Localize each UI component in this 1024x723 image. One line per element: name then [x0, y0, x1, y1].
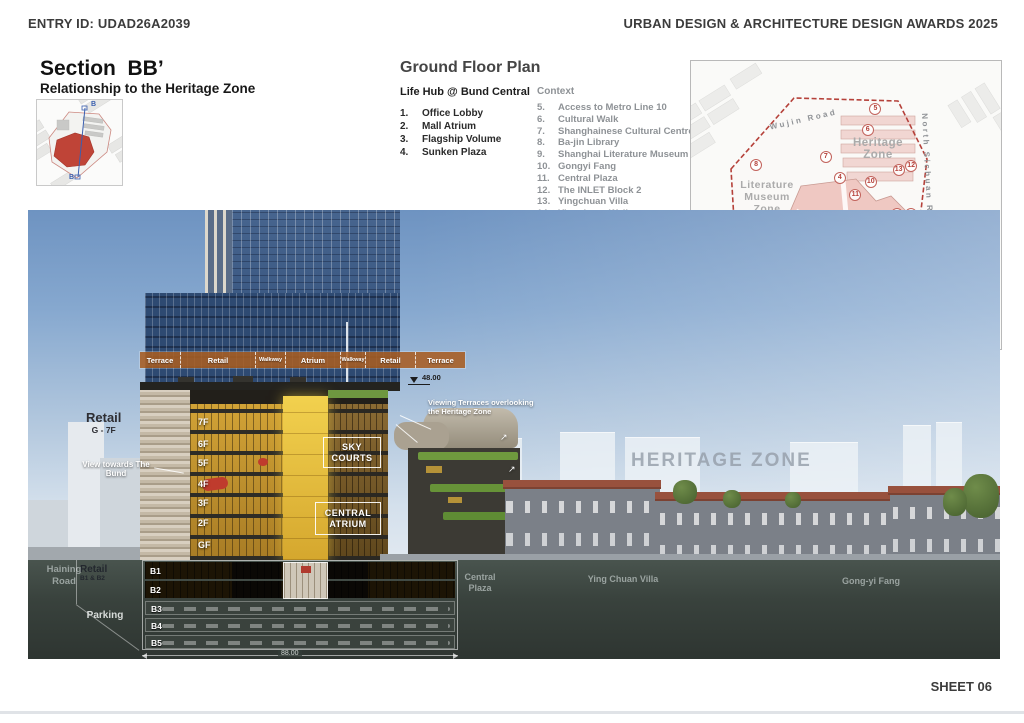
- interior-glow: [426, 466, 442, 473]
- strip-retail: Retail: [365, 352, 415, 368]
- strip-atrium: Atrium: [285, 352, 340, 368]
- width-dimension-value: 88.00: [278, 650, 302, 657]
- terraced-building-body: [408, 448, 520, 560]
- background-building: [68, 422, 104, 562]
- rooftop-volume: [394, 422, 449, 450]
- atrium-escalator-core: [283, 562, 328, 599]
- legend-item: 1.Office Lobby: [400, 107, 501, 120]
- metro-sign: [301, 566, 311, 573]
- tree: [723, 490, 741, 508]
- legend-item: 4.Sunken Plaza: [400, 146, 501, 159]
- strip-walkway: Walkway: [255, 352, 285, 368]
- strip-terrace: Terrace: [140, 352, 180, 368]
- rooftop-equipment: [233, 376, 253, 382]
- gfp-heading: Ground Floor Plan: [400, 59, 540, 77]
- map-marker-11: 11: [849, 189, 861, 201]
- level-marker-48: 48.00: [408, 373, 468, 387]
- key-plan-thumbnail: B B: [36, 99, 123, 186]
- basement-b5-row: B5: [145, 635, 455, 649]
- level-triangle-icon: [410, 377, 418, 383]
- viewing-terraces-annotation: Viewing Terraces overlooking the Heritag…: [428, 398, 543, 417]
- floor-label-4f: 4F: [198, 479, 209, 489]
- entry-id: ENTRY ID: UDAD26A2039: [28, 16, 190, 31]
- map-marker-4: 4: [834, 172, 846, 184]
- map-marker-12: 12: [905, 160, 917, 172]
- page-edge-line: [0, 711, 1024, 714]
- tree: [785, 492, 801, 508]
- ying-chuan-villa-label: Ying Chuan Villa: [568, 574, 678, 584]
- sheet-number: SHEET 06: [931, 679, 992, 694]
- legend-item: 12.The INLET Block 2: [537, 185, 694, 197]
- dim-arrow-left-icon: [142, 653, 147, 659]
- map-marker-5: 5: [869, 103, 881, 115]
- gfp-legend-list: 1.Office Lobby 2.Mall Atrium 3.Flagship …: [400, 107, 501, 159]
- map-marker-10: 10: [865, 176, 877, 188]
- section-mark-b-bottom: B: [69, 174, 74, 181]
- floor-label-5f: 5F: [198, 458, 209, 468]
- zone-divider-line: [76, 560, 77, 604]
- heritage-zone-watermark: HERITAGE ZONE: [631, 450, 812, 472]
- section-rendering: HERITAGE ZONE ↗ ↗ ↗ Terrace Retail Walkw…: [28, 210, 1000, 659]
- central-atrium-callout: CENTRAL ATRIUM: [315, 502, 381, 535]
- terraced-building: ↗ ↗ ↗: [388, 400, 520, 560]
- map-marker-8: 8: [750, 159, 762, 171]
- context-heading: Context: [537, 86, 574, 97]
- legend-item: 6.Cultural Walk: [537, 114, 694, 126]
- section-mark-b-top: B: [91, 101, 96, 108]
- legend-item: 5.Access to Metro Line 10: [537, 102, 694, 114]
- floor-label-7f: 7F: [198, 417, 209, 427]
- dim-arrow-right-icon: [453, 653, 458, 659]
- strip-walkway: Walkway: [340, 352, 365, 368]
- floor-label-gf: GF: [198, 540, 211, 550]
- map-marker-6: 6: [862, 124, 874, 136]
- underground-section: Haining Road Retail B1 & B2 Parking B1 B…: [28, 560, 1000, 659]
- floor-label-6f: 6F: [198, 439, 209, 449]
- basement-b4-row: B4: [145, 618, 455, 632]
- award-title: URBAN DESIGN & ARCHITECTURE DESIGN AWARD…: [624, 16, 998, 31]
- basement-box: B1 B2 B3 B4 B5: [142, 560, 458, 650]
- level-line: [408, 384, 430, 385]
- tree: [673, 480, 697, 504]
- central-plaza-label: Central Plaza: [452, 572, 508, 595]
- tree: [943, 488, 967, 516]
- parked-cars-sketch: [162, 641, 450, 645]
- strip-terrace: Terrace: [415, 352, 465, 368]
- view-bund-annotation: View towards The Bund: [76, 460, 156, 478]
- red-accent: [258, 458, 268, 466]
- gongyi-fang-label: Gong-yi Fang: [826, 576, 916, 586]
- terrace-arrow-icon: ↗: [508, 464, 516, 475]
- page-subtitle: Relationship to the Heritage Zone: [40, 81, 255, 96]
- map-marker-13: 13: [893, 164, 905, 176]
- retail-lower-annotation: Retail B1 & B2: [80, 564, 126, 582]
- context-legend-list: 5.Access to Metro Line 10 6.Cultural Wal…: [537, 102, 694, 220]
- map-marker-7: 7: [820, 151, 832, 163]
- heritage-buildings: [505, 478, 1000, 566]
- floor-label-2f: 2F: [198, 518, 209, 528]
- legend-item: 8.Ba-jin Library: [537, 137, 694, 149]
- strip-retail: Retail: [180, 352, 255, 368]
- retail-upper-annotation: Retail G - 7F: [86, 410, 121, 435]
- page-title: Section BB’: [40, 57, 164, 81]
- program-strip: Terrace Retail Walkway Atrium Walkway Re…: [140, 352, 465, 368]
- podium-glass-facade: [145, 293, 400, 388]
- legend-item: 2.Mall Atrium: [400, 120, 501, 133]
- gfp-subheading: Life Hub @ Bund Central: [400, 86, 530, 98]
- rooftop-equipment: [178, 377, 194, 382]
- legend-item: 10.Gongyi Fang: [537, 161, 694, 173]
- floor-label-3f: 3F: [198, 498, 209, 508]
- terrace-arrow-icon: ↗: [500, 432, 508, 443]
- key-plan-graphic: [37, 100, 122, 185]
- basement-b3-row: B3: [145, 601, 455, 615]
- parked-cars-sketch: [162, 624, 450, 628]
- rooftop-equipment: [290, 377, 306, 382]
- green-terrace: [418, 452, 518, 460]
- section-cut-building: 7F 6F 5F 4F 3F 2F GF SKY COURTS CENTRAL …: [140, 390, 388, 560]
- sky-courts-callout: SKY COURTS: [323, 437, 381, 468]
- legend-item: 13.Yingchuan Villa: [537, 196, 694, 208]
- heritage-roof: [503, 480, 661, 489]
- legend-item: 9.Shanghai Literature Museum: [537, 149, 694, 161]
- roof-garden: [328, 390, 388, 398]
- cut-floors-right: [328, 404, 388, 560]
- interior-glow: [448, 497, 462, 503]
- legend-item: 3.Flagship Volume: [400, 133, 501, 146]
- legend-item: 7.Shanghainese Cultural Centre: [537, 126, 694, 138]
- parked-cars-sketch: [162, 607, 450, 611]
- tree: [963, 474, 999, 518]
- legend-item: 11.Central Plaza: [537, 173, 694, 185]
- central-atrium-void: [283, 396, 328, 560]
